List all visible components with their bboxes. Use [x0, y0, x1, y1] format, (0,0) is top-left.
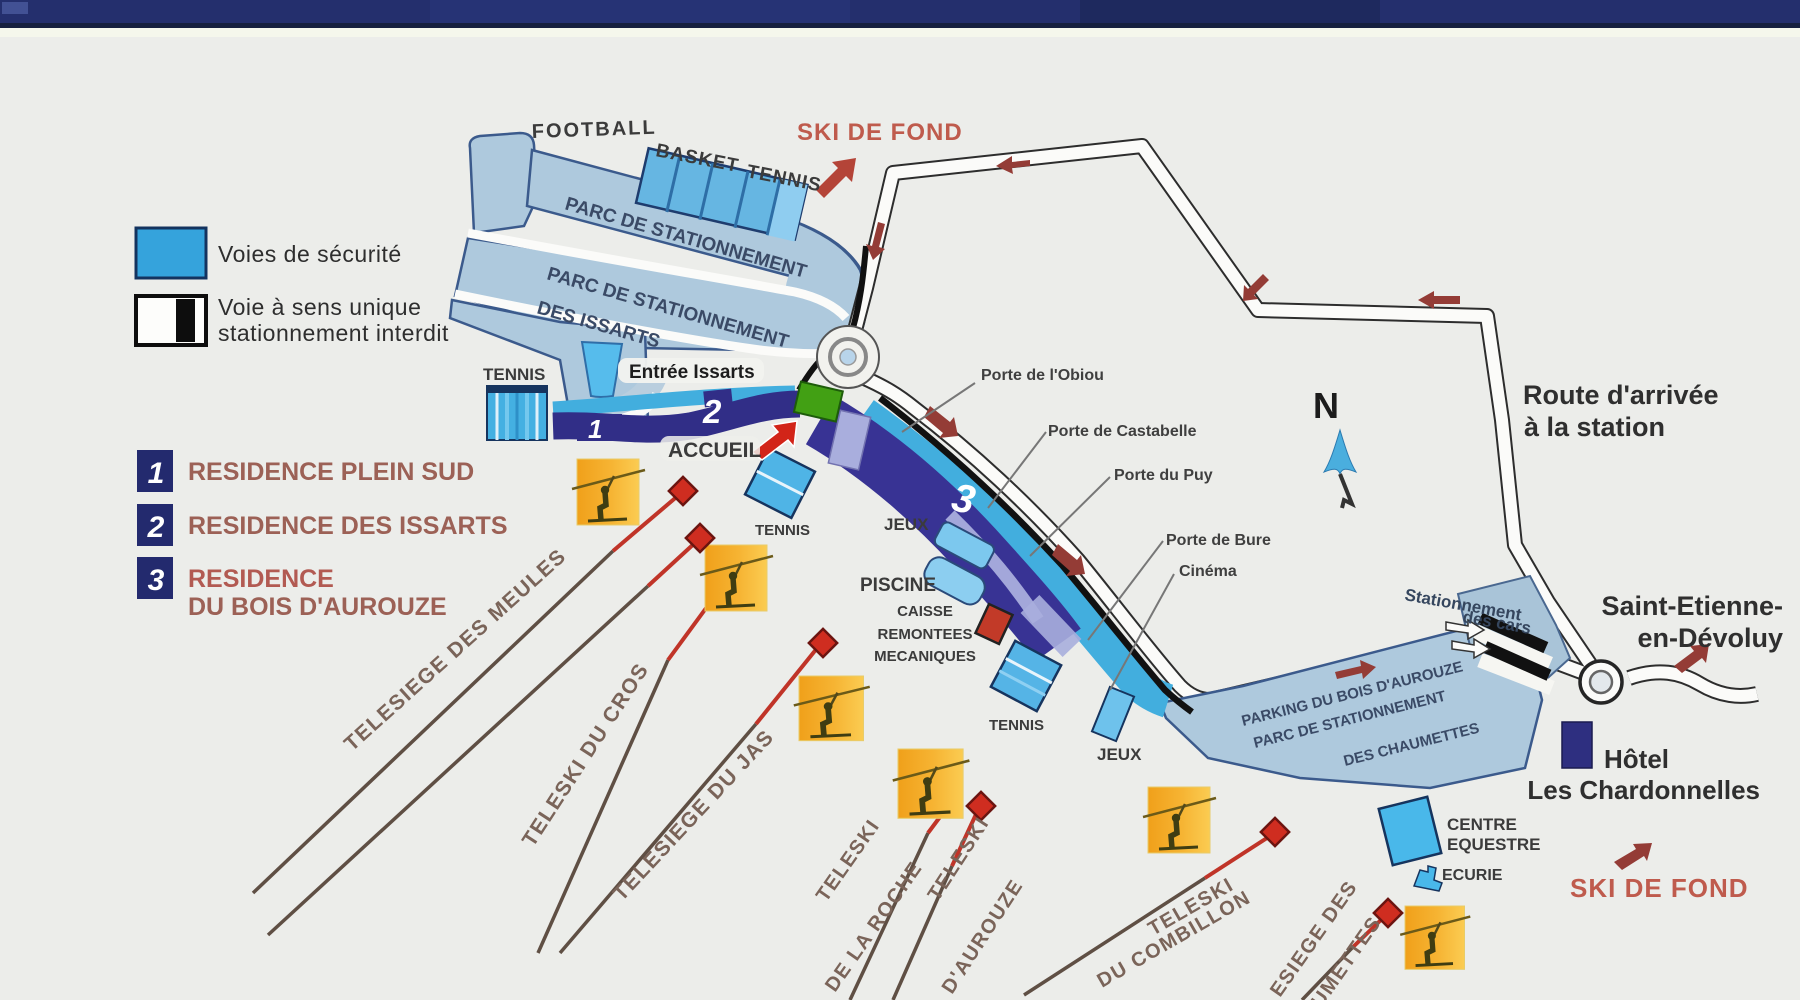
svg-text:REMONTEES: REMONTEES	[877, 626, 972, 643]
svg-text:2: 2	[702, 393, 722, 430]
svg-text:Porte de Castabelle: Porte de Castabelle	[1048, 423, 1197, 440]
svg-text:à la station: à la station	[1524, 412, 1665, 442]
svg-text:Route d'arrivée: Route d'arrivée	[1523, 380, 1719, 410]
svg-text:RESIDENCE DES ISSARTS: RESIDENCE DES ISSARTS	[188, 512, 508, 540]
svg-text:1: 1	[148, 457, 165, 490]
svg-text:Cinéma: Cinéma	[1179, 563, 1237, 580]
svg-text:Porte de l'Obiou: Porte de l'Obiou	[981, 367, 1104, 384]
svg-text:RESIDENCE PLEIN SUD: RESIDENCE PLEIN SUD	[188, 458, 474, 486]
svg-text:TENNIS: TENNIS	[989, 717, 1044, 734]
svg-text:SKI DE FOND: SKI DE FOND	[797, 119, 963, 146]
svg-text:Entrée Issarts: Entrée Issarts	[629, 362, 755, 383]
svg-text:RESIDENCE: RESIDENCE	[188, 565, 334, 593]
svg-text:TENNIS: TENNIS	[755, 522, 810, 539]
svg-text:Saint-Etienne-: Saint-Etienne-	[1601, 591, 1783, 621]
svg-text:MECANIQUES: MECANIQUES	[874, 648, 976, 665]
svg-text:ECURIE: ECURIE	[1442, 867, 1503, 884]
svg-text:Porte de Bure: Porte de Bure	[1166, 532, 1271, 549]
svg-text:Voie à sens unique: Voie à sens unique	[218, 294, 421, 320]
svg-text:2: 2	[147, 511, 165, 544]
svg-text:3: 3	[148, 564, 165, 597]
svg-text:Voies de sécurité: Voies de sécurité	[218, 241, 402, 267]
svg-text:EQUESTRE: EQUESTRE	[1447, 835, 1541, 854]
svg-text:JEUX: JEUX	[1097, 745, 1142, 764]
svg-text:PISCINE: PISCINE	[860, 575, 936, 596]
svg-text:Les Chardonnelles: Les Chardonnelles	[1527, 775, 1760, 805]
svg-text:Porte du Puy: Porte du Puy	[1114, 467, 1213, 484]
svg-text:ACCUEIL: ACCUEIL	[668, 439, 762, 462]
svg-text:SKI DE FOND: SKI DE FOND	[1570, 873, 1749, 903]
svg-text:1: 1	[588, 414, 602, 444]
svg-text:DU BOIS D'AUROUZE: DU BOIS D'AUROUZE	[188, 593, 447, 621]
svg-text:N: N	[1313, 385, 1339, 426]
svg-text:JEUX: JEUX	[884, 515, 929, 534]
svg-text:Hôtel: Hôtel	[1604, 744, 1669, 774]
svg-text:stationnement interdit: stationnement interdit	[218, 320, 449, 346]
svg-text:CAISSE: CAISSE	[897, 603, 953, 620]
svg-text:en-Dévoluy: en-Dévoluy	[1637, 623, 1783, 653]
svg-text:CENTRE: CENTRE	[1447, 815, 1517, 834]
svg-text:TENNIS: TENNIS	[483, 365, 545, 384]
svg-text:FOOTBALL: FOOTBALL	[531, 117, 657, 143]
